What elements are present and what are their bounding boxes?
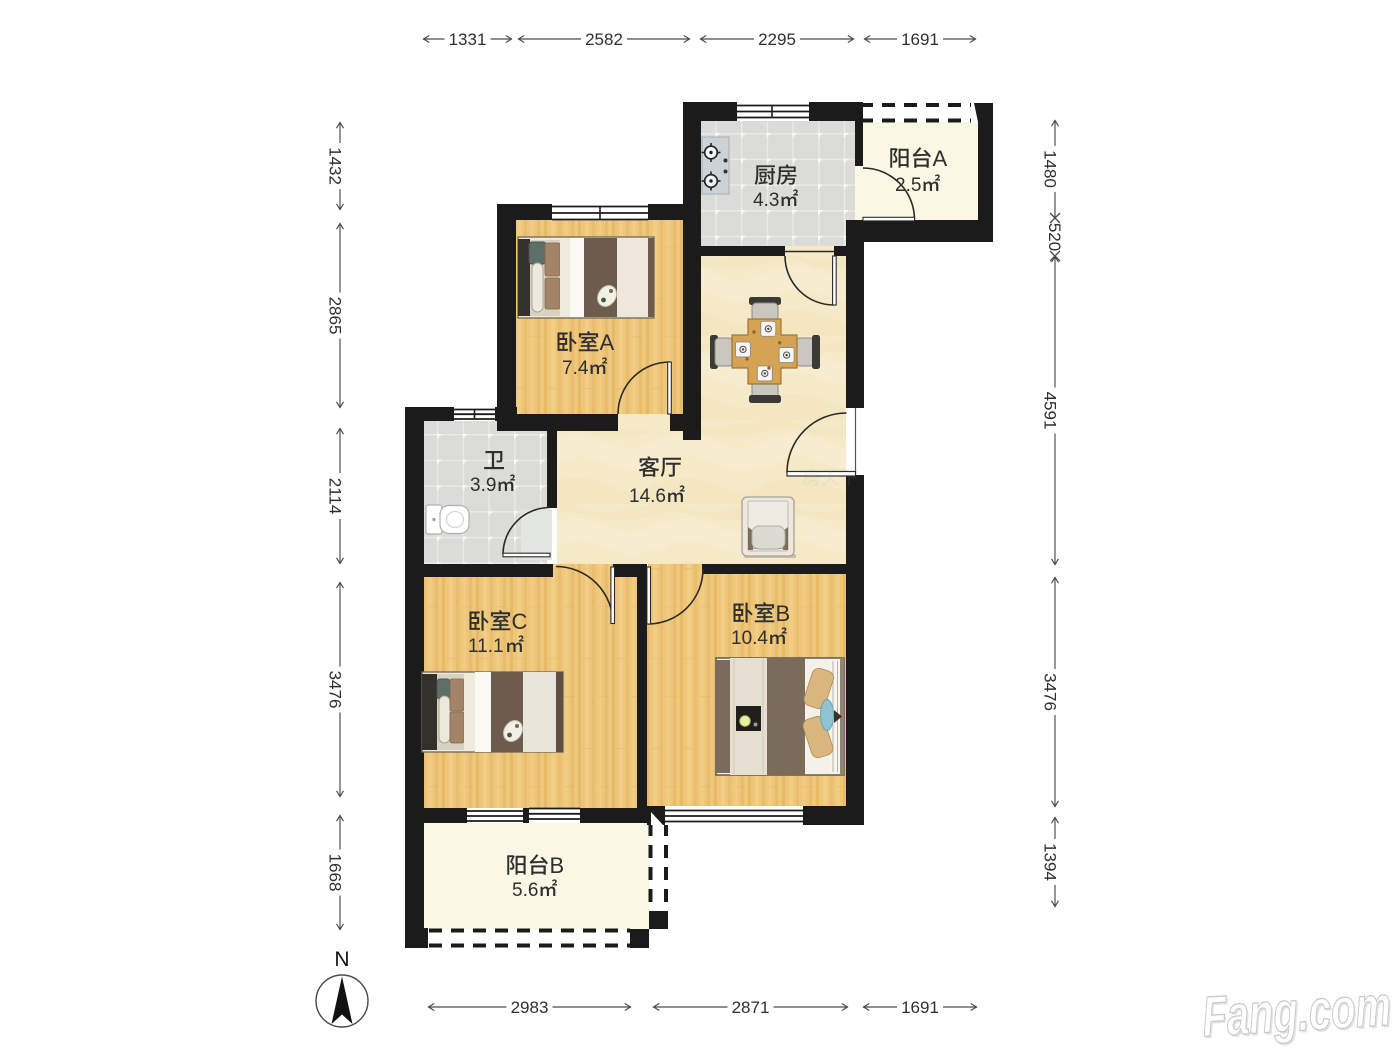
svg-text:2582: 2582 [585,30,623,49]
svg-text:4.3: 4.3 [753,190,779,211]
svg-text:C: C [512,609,528,634]
svg-text:3476: 3476 [325,671,344,709]
svg-text:2865: 2865 [325,297,344,335]
svg-text:1394: 1394 [1040,843,1059,881]
svg-text:1691: 1691 [901,30,939,49]
svg-text:2871: 2871 [732,998,770,1017]
svg-text:2114: 2114 [325,478,344,515]
svg-text:4591: 4591 [1040,392,1059,430]
svg-text:A: A [600,330,615,355]
svg-text:7.4: 7.4 [562,358,589,379]
svg-text:2983: 2983 [511,998,549,1017]
svg-text:1432: 1432 [325,147,344,185]
svg-text:11.1: 11.1 [468,636,504,657]
svg-text:14.6: 14.6 [629,486,666,507]
svg-text:520: 520 [1045,223,1064,251]
svg-text:10.4: 10.4 [731,628,768,649]
svg-text:3476: 3476 [1040,673,1059,711]
svg-text:1668: 1668 [325,854,344,892]
svg-text:1480: 1480 [1040,150,1059,188]
svg-text:B: B [550,853,565,878]
svg-text:N: N [334,948,349,971]
svg-text:1691: 1691 [901,998,939,1017]
svg-text:1331: 1331 [449,30,487,49]
svg-text:A: A [933,146,948,171]
svg-text:B: B [776,601,791,626]
svg-text:Fang.com: Fang.com [1200,975,1392,1049]
svg-text:2295: 2295 [758,30,796,49]
svg-text:3.9: 3.9 [470,475,496,496]
svg-text:2.5: 2.5 [895,175,921,196]
svg-text:5.6: 5.6 [512,880,538,901]
